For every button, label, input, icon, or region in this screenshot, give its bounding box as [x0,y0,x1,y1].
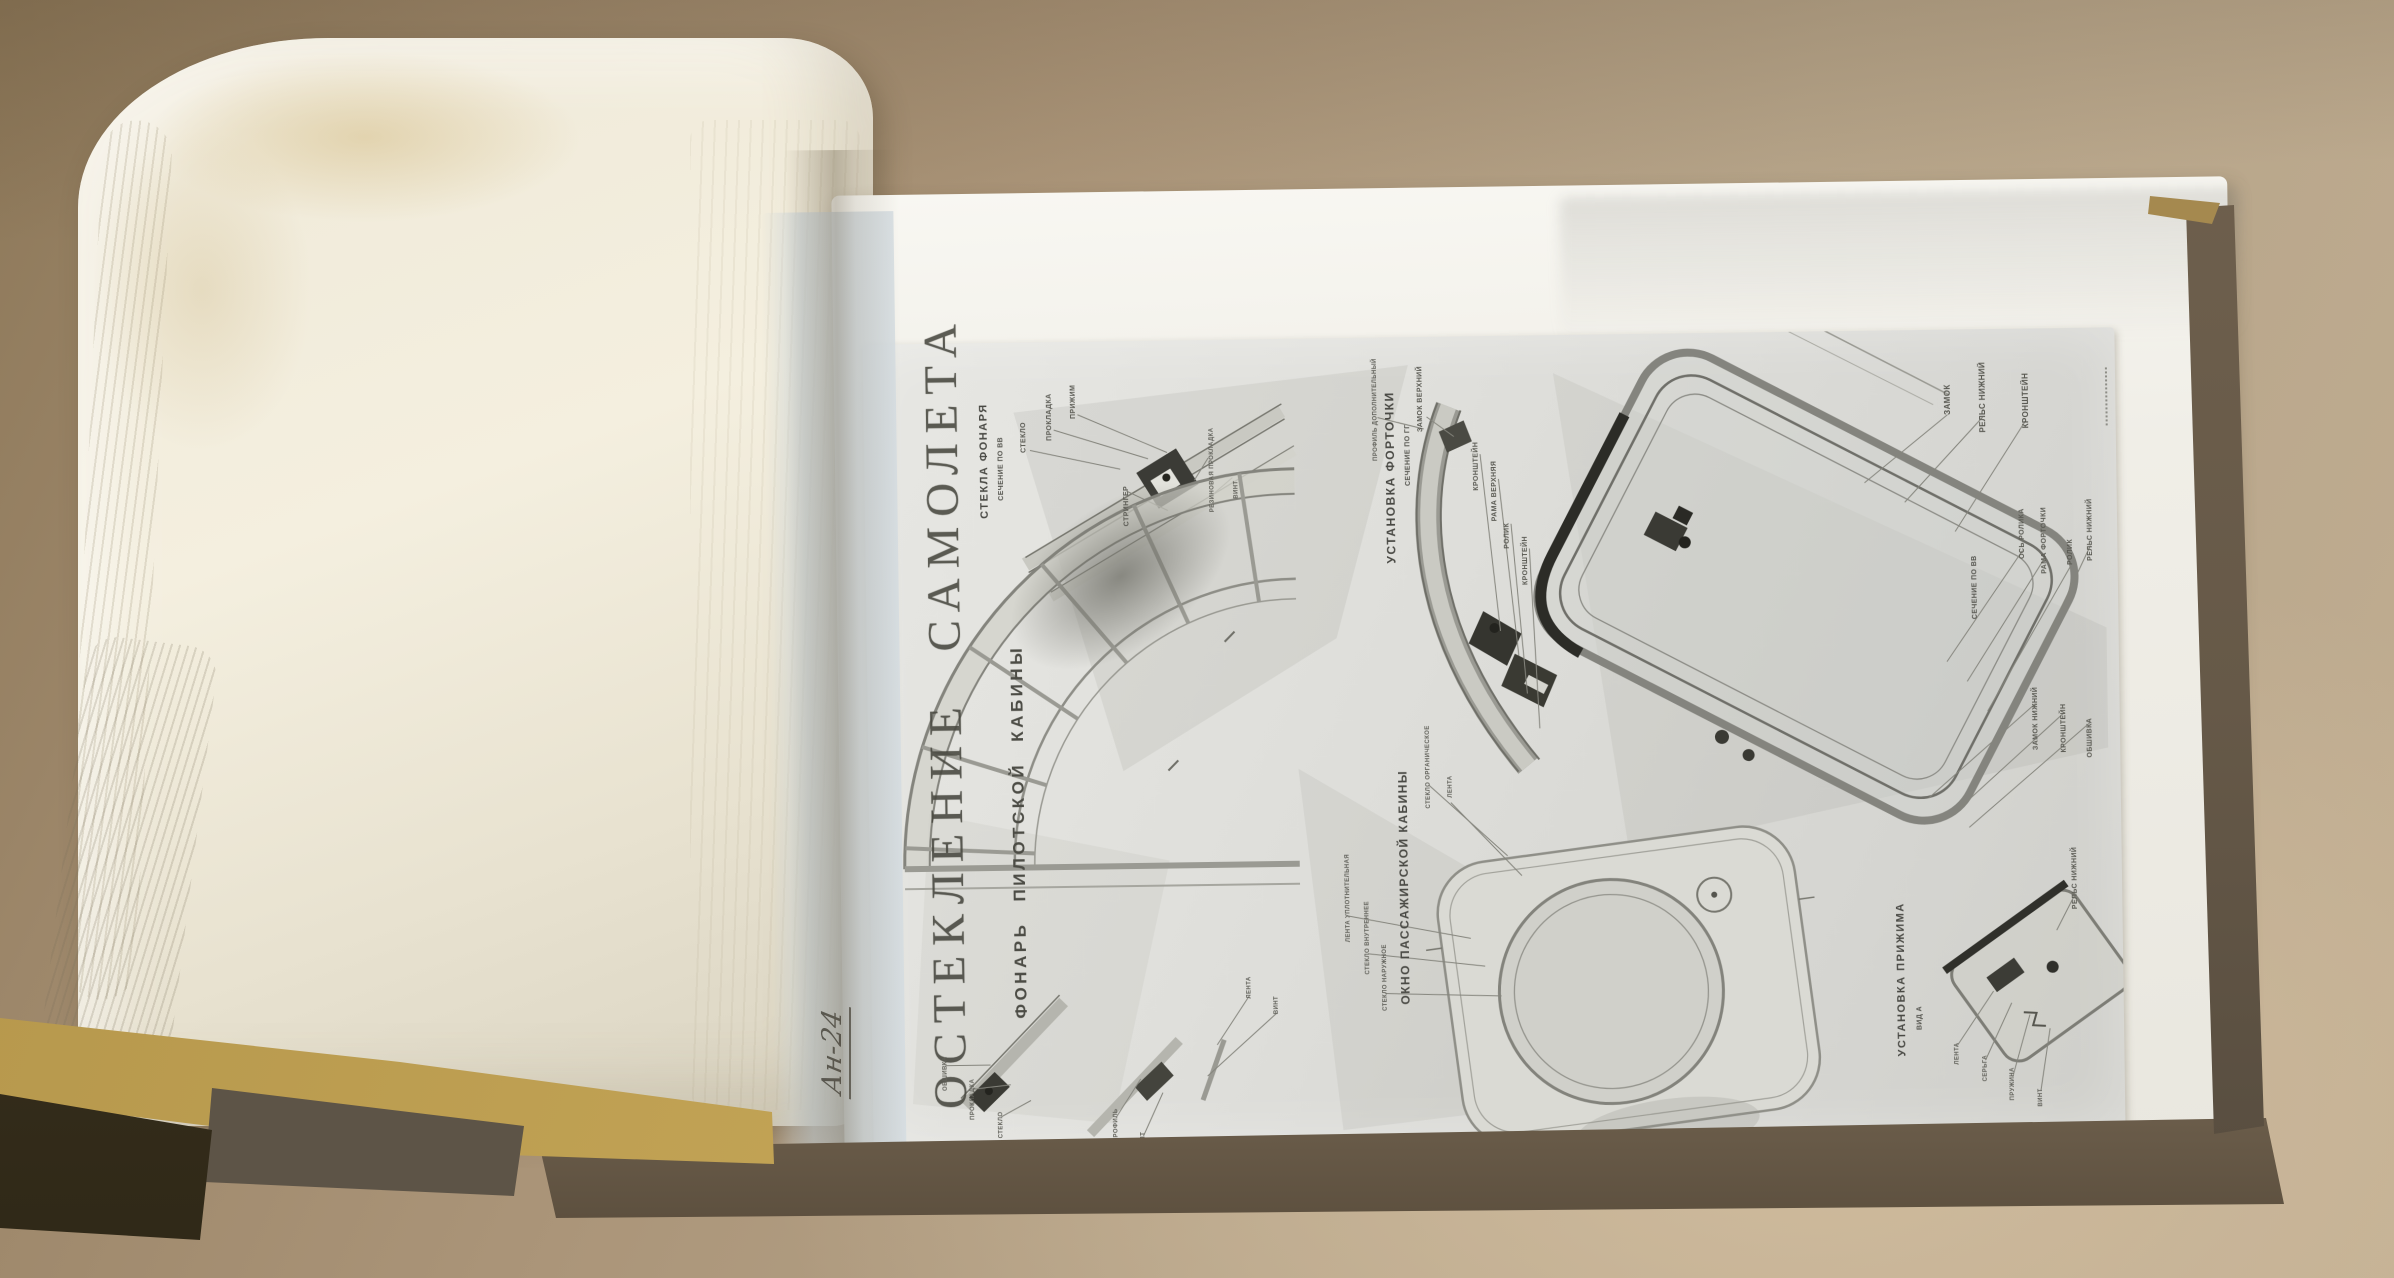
label-zamok: ЗАМОК [1943,384,1952,415]
label-lenta-uplotn: ЛЕНТА УПЛОТНИТЕЛЬНАЯ [1345,854,1352,942]
label-zamok-verh: ЗАМОК ВЕРХНИЙ [1416,366,1424,432]
label-vint-2: ВИНТ [2038,1088,2044,1106]
label-vint-3: ВИНТ [1274,996,1280,1014]
label-os-rolika: ОСЬ РОЛИКА [2018,508,2026,559]
passenger-window-drawing [1415,818,1846,1147]
gutter-shadow [784,150,908,1161]
label-rama-fortochki: РАМА ФОРТОЧКИ [2040,507,2048,574]
vent-install-note: СЕЧЕНИЕ ПО ГГ [1404,424,1412,486]
diagram-plate: ОСТЕКЛЕНИЕ САМОЛЕТА ФОНАРЬ ПИЛОТСКОЙ КАБ… [862,327,2125,1146]
label-prokladka: ПРОКЛАДКА [1046,393,1054,441]
microprint-marks [2106,367,2107,427]
canopy-glass-note: СЕЧЕНИЕ ПО ВВ [997,437,1005,501]
label-zamok-nizh: ЗАМОК НИЖНИЙ [2032,687,2040,750]
label-steklo-organich: СТЕКЛО ОРГАНИЧЕСКОЕ [1425,725,1432,808]
vent-install-heading: УСТАНОВКА ФОРТОЧКИ [1382,391,1398,563]
label-prokladka-2: ПРОКЛАДКА [970,1079,977,1120]
label-serga: СЕРЬГА [1982,1055,1988,1081]
label-stringer: СТРИНГЕР [1123,486,1131,527]
label-pruzhina: ПРУЖИНА [2010,1067,2016,1100]
label-rels-nizh-1: РЕЛЬС НИЖНИЙ [1977,362,1987,433]
label-kronshtein-4: КРОНШТЕЙН [2060,703,2068,752]
label-rolik-1: РОЛИК [1504,523,1511,549]
label-rolik-2: РОЛИК [2067,539,2074,565]
label-obshivka-1: ОБШИВКА [2086,718,2094,758]
clamp-drawing [1945,883,2126,1068]
label-lenta-3: ЛЕНТА [1246,976,1252,998]
label-kronshtein-2: КРОНШТЕЙН [1522,536,1530,585]
label-kronshtein-3: КРОНШТЕЙН [2020,373,2030,429]
label-lenta-1: ЛЕНТА [1448,775,1454,797]
label-rezin-prokladka: РЕЗИНОВАЯ ПРОКЛАДКА [1209,428,1216,513]
label-profil: ПРОФИЛЬ [1113,1108,1119,1142]
label-rels-nizh-3: РЕЛЬС НИЖНИЙ [2071,847,2079,910]
label-rama-verh: РАМА ВЕРХНЯЯ [1491,461,1499,522]
technical-drawing-svg [862,327,2125,1146]
label-obshivka-2: ОБШИВКА [942,1056,948,1091]
right-page-shadow [1559,187,2241,346]
label-rels-nizh-2: РЕЛЬС НИЖНИЙ [2086,498,2094,561]
vent-frame-note: СЕЧЕНИЕ ПО ВВ [1971,555,1979,619]
canopy-glass-heading: СТЕКЛА ФОНАРЯ [977,403,991,519]
clamp-install-note: ВИД А [1916,1006,1923,1030]
label-steklo-vnutr: СТЕКЛО ВНУТРЕННЕЕ [1364,901,1371,975]
clamp-install-heading: УСТАНОВКА ПРИЖИМА [1894,902,1908,1056]
plate-title: ОСТЕКЛЕНИЕ САМОЛЕТА [913,314,978,1109]
label-prizhim: ПРИЖИМ [1070,385,1077,419]
label-lenta-2: ЛЕНТА [1954,1042,1960,1064]
label-vint: ВИНТ [1233,480,1239,498]
label-kronshtein-1: КРОНШТЕЙН [1472,442,1480,491]
photo-scene: ОСТЕКЛЕНИЕ САМОЛЕТА ФОНАРЬ ПИЛОТСКОЙ КАБ… [0,0,2394,1278]
label-steklo-naruzh: СТЕКЛО НАРУЖНОЕ [1382,944,1389,1011]
label-steklo: СТЕКЛО [1020,422,1027,453]
label-steklo-2: СТЕКЛО [998,1111,1004,1138]
